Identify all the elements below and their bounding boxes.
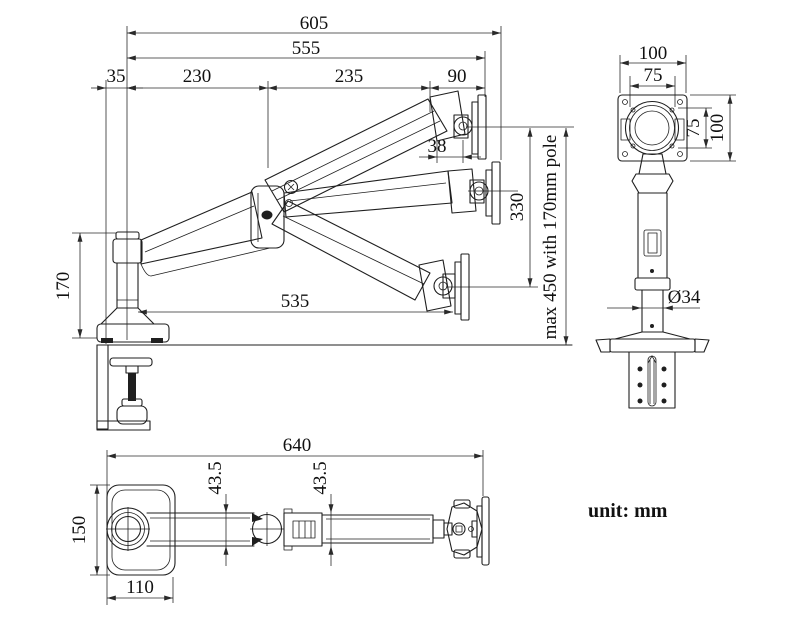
vesa-plate-front xyxy=(618,95,687,161)
dim-pole-diameter: Ø34 xyxy=(668,287,701,308)
dim-total-length: 640 xyxy=(283,435,312,456)
technical-drawing-sheet: 605 555 35 230 235 90 38 330 max 450 wit… xyxy=(0,0,790,634)
dim-arm1-span: 230 xyxy=(183,66,212,87)
side-view-dimension-lines xyxy=(80,33,566,345)
dim-base-width: 110 xyxy=(126,577,154,598)
dim-vesa-hole-width: 75 xyxy=(644,65,663,86)
upper-arm-raised xyxy=(265,91,486,212)
top-view: 640 43.5 43.5 150 110 xyxy=(69,435,489,605)
clamp-bracket-front xyxy=(629,352,675,408)
dim-clamp-offset: 35 xyxy=(107,66,126,87)
dim-base-depth: 150 xyxy=(69,516,90,545)
arm-top xyxy=(147,509,452,550)
head-top xyxy=(447,497,489,565)
dim-low-reach: 535 xyxy=(281,291,310,312)
pole-assembly xyxy=(97,232,169,343)
unit-label: unit: mm xyxy=(588,500,668,522)
monitor-arm-drawing: 605 555 35 230 235 90 38 330 max 450 wit… xyxy=(0,0,790,634)
side-view: 605 555 35 230 235 90 38 330 max 450 wit… xyxy=(53,13,574,430)
dim-arm2-width: 43.5 xyxy=(310,461,331,494)
dim-arm2-span: 235 xyxy=(335,66,364,87)
base-plate-top xyxy=(106,485,175,575)
front-view: 100 75 75 100 Ø34 xyxy=(596,43,736,408)
dim-arm1-width: 43.5 xyxy=(205,461,226,494)
dim-plate-width: 100 xyxy=(639,43,668,64)
dim-vesa-width: 555 xyxy=(292,38,321,59)
dim-total-width: 605 xyxy=(300,13,329,34)
desk-clamp xyxy=(97,345,152,430)
top-view-dimension-lines xyxy=(97,456,483,598)
dim-plate-height: 100 xyxy=(707,114,728,143)
side-view-extension-lines xyxy=(72,26,574,344)
elbow-joint xyxy=(251,181,298,249)
dim-vesa-travel: 330 xyxy=(507,193,528,222)
pole-front xyxy=(596,154,709,352)
upper-arm-level xyxy=(284,162,500,224)
dim-lift-note: max 450 with 170mm pole xyxy=(540,135,561,340)
dim-head-span: 90 xyxy=(448,66,467,87)
dim-pole-height: 170 xyxy=(53,272,74,301)
dim-vesa-hole-height: 75 xyxy=(683,119,704,138)
